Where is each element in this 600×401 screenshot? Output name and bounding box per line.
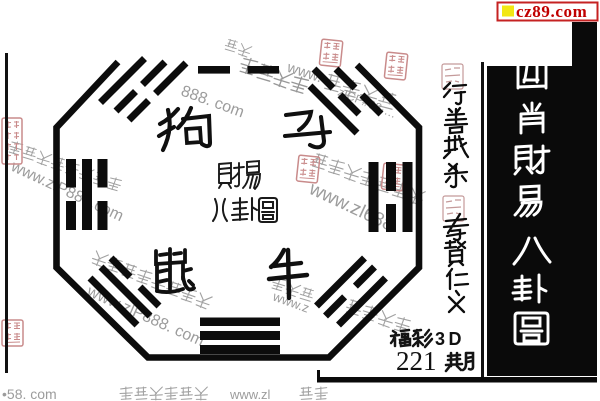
svg-text:cz89.com: cz89.com <box>516 2 587 21</box>
svg-text:3D: 3D <box>435 329 465 349</box>
svg-text:•58. com: •58. com <box>2 386 57 401</box>
svg-text:221: 221 <box>396 346 437 376</box>
svg-text:www.zl: www.zl <box>229 387 271 401</box>
